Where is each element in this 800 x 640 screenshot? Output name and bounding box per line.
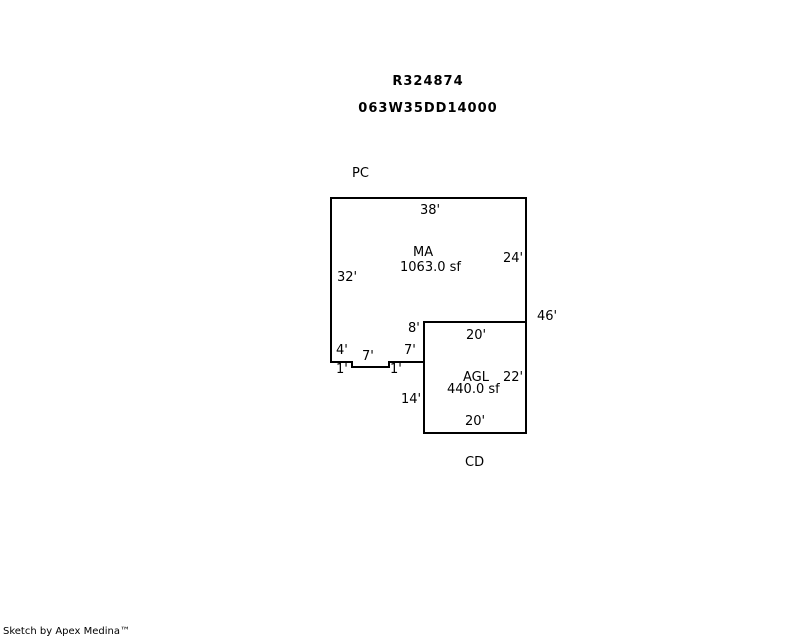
label-dim-1-left: 1' xyxy=(336,363,348,376)
sketch-lines xyxy=(0,0,800,640)
label-dim-7-mid: 7' xyxy=(362,350,374,363)
label-area-agl-sqft: 440.0 sf xyxy=(447,383,500,396)
label-dim-14-left: 14' xyxy=(401,393,421,406)
label-area-ma: MA xyxy=(413,246,433,259)
sketch-page: R324874 063W35DD14000 PC38'MA1063.0 sf32… xyxy=(0,0,800,640)
label-dim-20-agl-top: 20' xyxy=(466,329,486,342)
label-dim-8: 8' xyxy=(408,322,420,335)
label-dim-7-right: 7' xyxy=(404,344,416,357)
label-dim-22-right: 22' xyxy=(503,371,523,384)
label-dim-24-right: 24' xyxy=(503,252,523,265)
building-outline xyxy=(331,198,527,433)
label-area-code-cd: CD xyxy=(465,456,484,469)
label-area-ma-sqft: 1063.0 sf xyxy=(400,261,461,274)
label-dim-38-top: 38' xyxy=(420,204,440,217)
sketch-credit: Sketch by Apex Medina™ xyxy=(3,626,130,637)
label-dim-1-right: 1' xyxy=(390,363,402,376)
label-dim-46-right: 46' xyxy=(537,310,557,323)
label-dim-4: 4' xyxy=(336,344,348,357)
label-dim-20-agl-bottom: 20' xyxy=(465,415,485,428)
label-dim-32-left: 32' xyxy=(337,271,357,284)
label-area-code-pc: PC xyxy=(352,167,369,180)
